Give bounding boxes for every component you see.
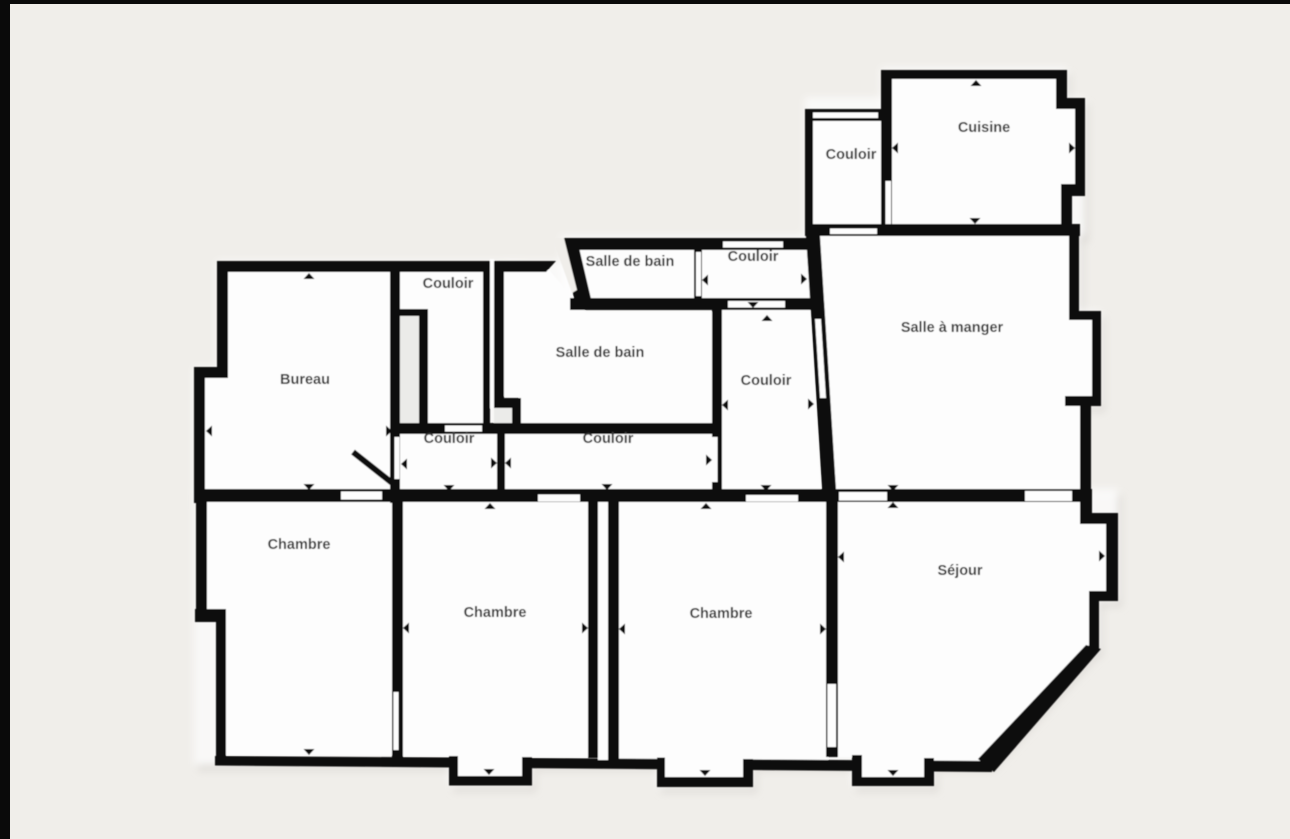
svg-text:Couloir: Couloir <box>424 431 475 447</box>
svg-text:Salle de bain: Salle de bain <box>556 345 645 361</box>
svg-text:Couloir: Couloir <box>583 431 634 447</box>
svg-text:Couloir: Couloir <box>741 373 792 389</box>
svg-text:Couloir: Couloir <box>423 276 474 292</box>
svg-text:Couloir: Couloir <box>728 249 779 265</box>
svg-text:Chambre: Chambre <box>268 537 331 553</box>
svg-text:Chambre: Chambre <box>464 605 527 621</box>
svg-text:Chambre: Chambre <box>690 606 753 622</box>
svg-text:Séjour: Séjour <box>937 563 982 579</box>
svg-text:Salle à manger: Salle à manger <box>901 320 1004 336</box>
svg-text:Bureau: Bureau <box>280 372 330 388</box>
svg-text:Cuisine: Cuisine <box>958 120 1010 136</box>
svg-text:Salle de bain: Salle de bain <box>586 254 675 270</box>
svg-text:Couloir: Couloir <box>826 147 877 163</box>
